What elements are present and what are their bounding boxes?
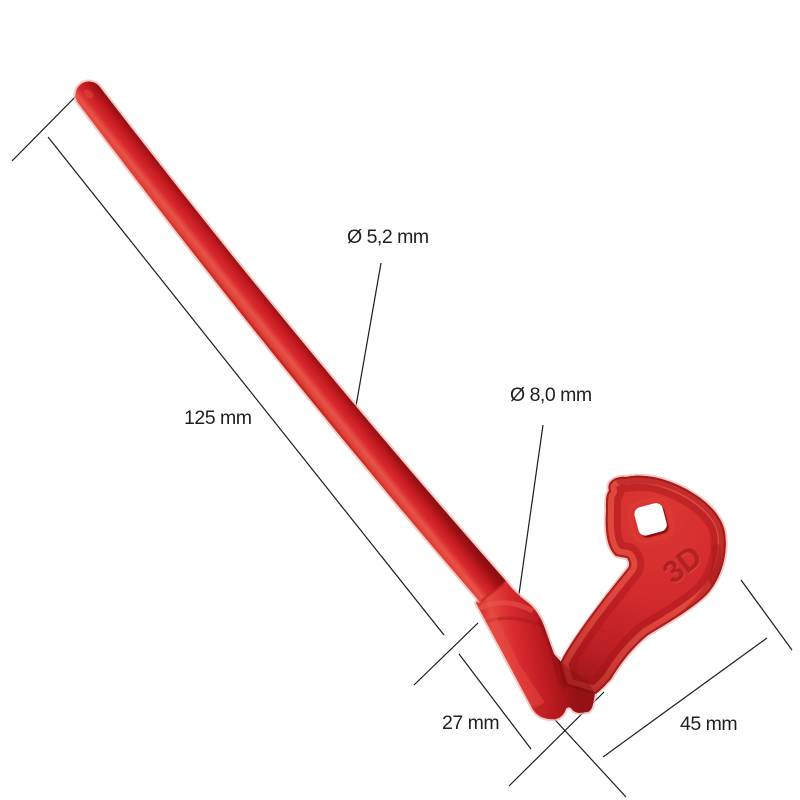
svg-text:27 mm: 27 mm — [442, 712, 499, 734]
svg-text:45 mm: 45 mm — [680, 713, 737, 735]
svg-text:Ø 5,2 mm: Ø 5,2 mm — [347, 226, 429, 248]
svg-text:Ø 8,0 mm: Ø 8,0 mm — [510, 384, 592, 406]
svg-text:125 mm: 125 mm — [184, 407, 251, 429]
